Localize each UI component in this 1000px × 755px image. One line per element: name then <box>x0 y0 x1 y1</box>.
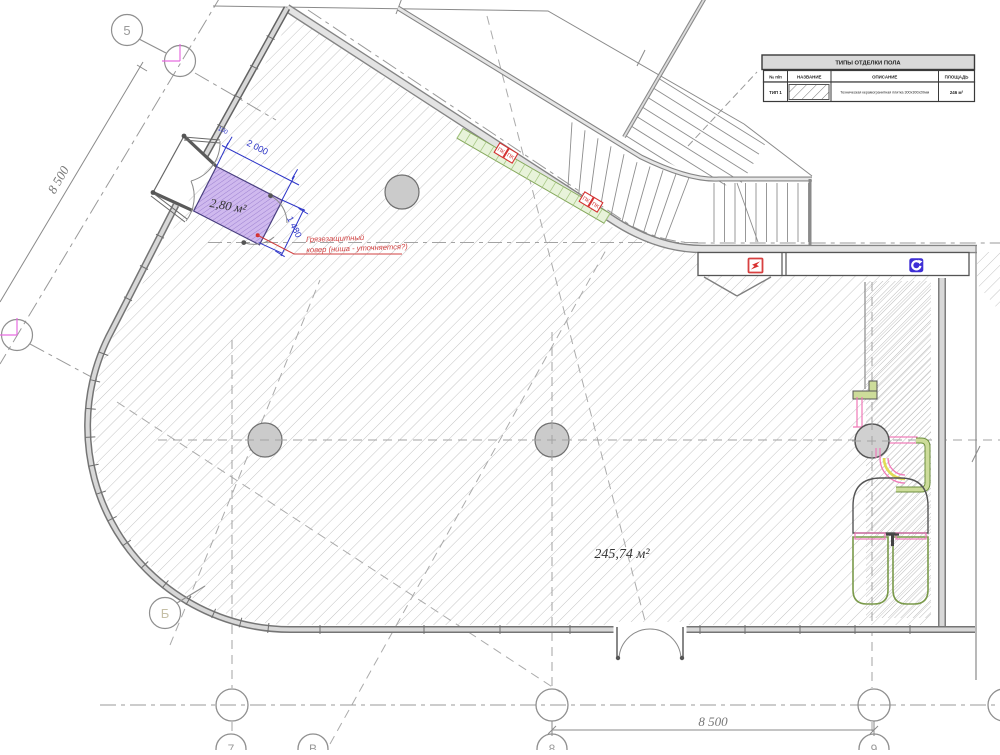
svg-text:8: 8 <box>549 742 556 750</box>
svg-text:НАЗВАНИЕ: НАЗВАНИЕ <box>797 75 822 80</box>
svg-text:8 500: 8 500 <box>44 163 72 196</box>
svg-text:Б: Б <box>161 606 170 621</box>
svg-text:ТИПЫ ОТДЕЛКИ ПОЛА: ТИПЫ ОТДЕЛКИ ПОЛА <box>835 61 901 67</box>
svg-text:245,74 м²: 245,74 м² <box>594 547 650 562</box>
svg-text:ТИП 1: ТИП 1 <box>769 90 782 95</box>
svg-text:246 м²: 246 м² <box>950 90 964 95</box>
svg-text:8 500: 8 500 <box>698 714 728 729</box>
svg-text:5: 5 <box>123 23 130 38</box>
svg-text:7: 7 <box>228 742 235 750</box>
svg-text:Техническая керамогранитная пл: Техническая керамогранитная плитка 300х3… <box>840 91 929 95</box>
svg-text:В: В <box>309 742 317 750</box>
svg-text:ОПИСАНИЕ: ОПИСАНИЕ <box>872 75 897 80</box>
svg-text:9: 9 <box>871 742 878 750</box>
svg-text:№ п/п: № п/п <box>769 75 782 80</box>
svg-text:ПЛОЩАДЬ: ПЛОЩАДЬ <box>945 75 969 80</box>
